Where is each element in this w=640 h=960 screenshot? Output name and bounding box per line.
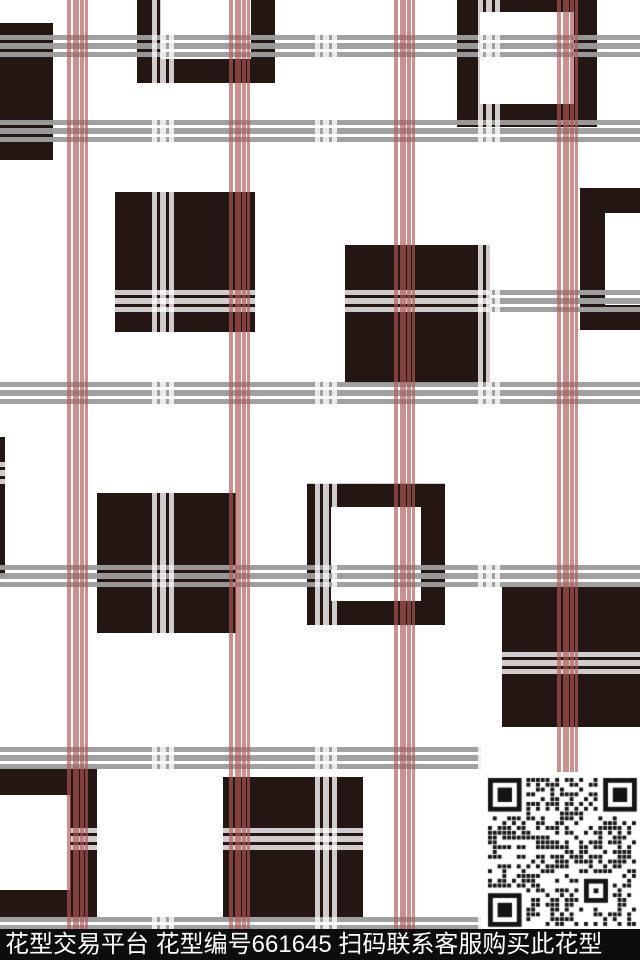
gray-horizontal-stripe: [0, 565, 640, 570]
watermark-bar: 花型交易平台 花型编号661645 扫码联系客服购买此花型: [0, 929, 640, 960]
gray-horizontal-stripe: [0, 128, 640, 134]
pink-vertical-stripe: [394, 0, 398, 930]
watermark-text: 花型交易平台 花型编号661645 扫码联系客服购买此花型: [0, 929, 602, 960]
white-vertical-stripe: [323, 0, 329, 930]
white-horizontal-stripe: [0, 479, 640, 484]
gray-horizontal-stripe: [0, 43, 640, 49]
pink-vertical-stripe: [235, 0, 241, 930]
pink-vertical-stripe: [407, 0, 411, 930]
pattern-canvas: 花型交易平台 花型编号661645 扫码联系客服购买此花型: [0, 0, 640, 960]
white-horizontal-stripe: [0, 660, 640, 666]
gray-horizontal-stripe: [0, 137, 640, 142]
white-vertical-stripe: [315, 0, 320, 930]
white-vertical-stripe: [152, 0, 157, 930]
black-square-solid: [345, 245, 490, 383]
gray-horizontal-stripe: [0, 35, 640, 40]
pink-vertical-stripe: [67, 0, 71, 930]
pink-vertical-stripe: [73, 0, 79, 930]
black-square-solid: [0, 437, 5, 577]
gray-horizontal-stripe: [0, 390, 640, 396]
pink-vertical-stripe: [412, 0, 415, 930]
pink-vertical-stripe: [400, 0, 406, 930]
gray-horizontal-stripe: [0, 120, 640, 125]
pink-vertical-stripe: [247, 0, 250, 930]
white-horizontal-stripe: [0, 462, 640, 467]
gray-horizontal-stripe: [0, 399, 640, 404]
qr-code: [481, 772, 640, 930]
white-horizontal-stripe: [0, 470, 640, 476]
white-horizontal-stripe: [0, 669, 640, 674]
white-vertical-stripe: [160, 0, 166, 930]
gray-horizontal-stripe: [0, 52, 640, 57]
pink-vertical-stripe: [85, 0, 88, 930]
black-square-frame: [137, 0, 275, 83]
pink-vertical-stripe: [229, 0, 233, 930]
pink-vertical-stripe: [80, 0, 84, 930]
black-square-solid: [97, 493, 236, 633]
gray-horizontal-stripe: [0, 573, 640, 579]
gray-horizontal-stripe: [0, 382, 640, 387]
white-horizontal-stripe: [0, 652, 640, 657]
gray-horizontal-stripe: [0, 582, 640, 587]
white-vertical-stripe: [169, 0, 174, 930]
pink-vertical-stripe: [242, 0, 246, 930]
white-vertical-stripe: [332, 0, 337, 930]
